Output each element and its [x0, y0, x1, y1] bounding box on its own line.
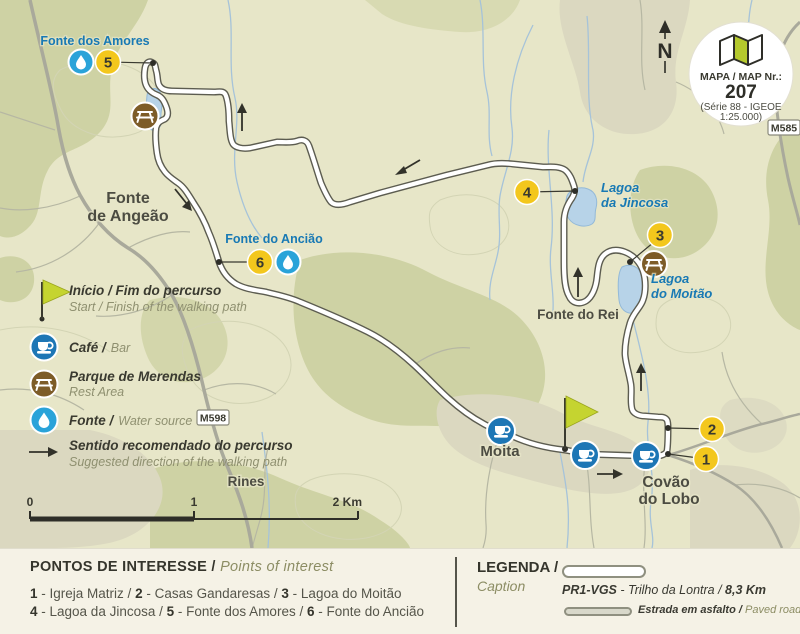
- key-fonte-pt: Fonte /: [69, 413, 114, 428]
- north-label: N: [657, 40, 672, 63]
- svg-text:Fonte /Water source: Fonte /Water source: [69, 413, 192, 428]
- paved-road-symbol: [564, 607, 632, 616]
- road-label-m585: M585: [768, 120, 800, 135]
- label-moita: Moita: [480, 443, 520, 460]
- poi-name-3: Lagoa do Moitão: [301, 586, 402, 601]
- water-marker-amores: [69, 50, 94, 75]
- legenda-title: LEGENDA /: [477, 559, 558, 576]
- label-fonte-de-angeao: Fonte: [106, 190, 150, 207]
- poi-sep: -: [38, 586, 50, 601]
- label-fonte-dos-amores: Fonte dos Amores: [40, 34, 149, 48]
- poi-marker-1-label: 1: [702, 451, 710, 468]
- key-sentido-en: Suggested direction of the walking path: [69, 455, 287, 469]
- poi-list-line-2: 4 - Lagoa da Jincosa / 5 - Fonte dos Amo…: [30, 604, 424, 619]
- panel-divider: [455, 557, 457, 627]
- poi-sep: -: [38, 604, 50, 619]
- poi-num-1: 1: [30, 586, 38, 601]
- label-lagoa-da-jincosa-2: da Jincosa: [601, 195, 668, 210]
- svg-text:Café /Bar: Café /Bar: [69, 340, 131, 355]
- trail-symbol: [562, 565, 646, 578]
- key-cafe-pt: Café /: [69, 340, 107, 355]
- label-rines: Rines: [228, 474, 265, 489]
- poi-sep: /: [124, 586, 135, 601]
- label-covao-do-lobo: Covão: [642, 474, 689, 491]
- info-panel: PONTOS DE INTERESSE / Points of interest…: [0, 548, 800, 634]
- map-badge: MAPA / MAP Nr.: 207 (Série 88 - IGEOE 1:…: [689, 22, 793, 126]
- water-marker-anciao: [276, 250, 301, 275]
- trail-name: - Trilho da Lontra /: [617, 583, 725, 597]
- cafe-marker-center: [571, 441, 599, 469]
- poi-sep: -: [314, 604, 326, 619]
- poi-sep: -: [143, 586, 155, 601]
- trail-name-label: PR1-VGS - Trilho da Lontra / 8,3 Km: [562, 583, 766, 597]
- poi-name-4: Lagoa da Jincosa: [50, 604, 156, 619]
- poi-title-pt: PONTOS DE INTERESSE /: [30, 559, 216, 575]
- cafe-marker-covao: [632, 442, 660, 470]
- poi-marker-5-label: 5: [104, 54, 112, 71]
- legenda-caption: Caption: [477, 578, 525, 594]
- scale-1: 1: [191, 495, 198, 509]
- label-covao-do-lobo-2: do Lobo: [638, 491, 699, 508]
- poi-name-5: Fonte dos Amores: [186, 604, 296, 619]
- key-cafe-en: Bar: [111, 341, 131, 355]
- poi-marker-2: 2: [700, 417, 725, 442]
- poi-sep: /: [155, 604, 166, 619]
- poi-list-line-1: 1 - Igreja Matriz / 2 - Casas Gandaresas…: [30, 586, 402, 601]
- poi-marker-2-label: 2: [708, 421, 716, 438]
- poi-sep: /: [296, 604, 307, 619]
- poi-marker-3-label: 3: [656, 227, 664, 244]
- poi-marker-6-label: 6: [256, 254, 264, 271]
- poi-sep: -: [174, 604, 186, 619]
- poi-marker-3: 3: [648, 223, 673, 248]
- paved-road-label: Estrada em asfalto / Paved road: [638, 604, 800, 616]
- folded-map-icon: [720, 35, 762, 65]
- key-sentido-pt: Sentido recomendado do percurso: [69, 438, 293, 453]
- poi-num-2: 2: [135, 586, 143, 601]
- paved-road-pt: Estrada em asfalto /: [638, 604, 742, 616]
- poi-name-6: Fonte do Ancião: [326, 604, 424, 619]
- poi-num-4: 4: [30, 604, 38, 619]
- poi-sep: /: [270, 586, 281, 601]
- picnic-marker-amores: [132, 103, 159, 130]
- map-canvas: 5 6 4 3 2 1 Fonte de Angeão Moita Covão: [0, 0, 800, 548]
- paved-road-en: Paved road: [745, 604, 800, 616]
- scale-0: 0: [27, 495, 34, 509]
- badge-series-2: 1:25.000): [720, 112, 762, 123]
- road-label-m585-text: M585: [771, 122, 797, 134]
- cafe-marker-moita: [487, 417, 515, 445]
- label-lagoa-do-moitao-2: do Moitão: [651, 286, 712, 301]
- poi-marker-4: 4: [515, 180, 540, 205]
- poi-name-1: Igreja Matriz: [50, 586, 124, 601]
- trail-distance: 8,3 Km: [725, 583, 766, 597]
- label-fonte-do-rei: Fonte do Rei: [537, 307, 619, 322]
- road-label-m598-text: M598: [200, 412, 226, 424]
- label-lagoa-da-jincosa: Lagoa: [601, 180, 639, 195]
- key-inicio-en: Start / Finish of the walking path: [69, 300, 247, 314]
- key-parque-en: Rest Area: [69, 385, 124, 399]
- poi-marker-4-label: 4: [523, 184, 532, 201]
- poi-name-2: Casas Gandaresas: [155, 586, 271, 601]
- poi-num-5: 5: [167, 604, 175, 619]
- label-fonte-do-anciao: Fonte do Ancião: [225, 232, 323, 246]
- poi-marker-6: 6: [248, 250, 273, 275]
- key-parque-pt: Parque de Merendas: [69, 369, 202, 384]
- key-inicio-pt: Início / Fim do percurso: [69, 283, 221, 298]
- poi-marker-5: 5: [96, 50, 121, 75]
- road-label-m598: M598: [197, 410, 229, 425]
- key-fonte-en: Water source: [118, 414, 192, 428]
- poi-num-3: 3: [281, 586, 289, 601]
- poi-title-en: Points of interest: [220, 559, 333, 575]
- scale-2km: 2 Km: [333, 495, 362, 509]
- label-fonte-de-angeao-2: de Angeão: [87, 208, 168, 225]
- poi-marker-1: 1: [694, 447, 719, 472]
- label-lagoa-do-moitao: Lagoa: [651, 271, 689, 286]
- trail-map-page: 5 6 4 3 2 1 Fonte de Angeão Moita Covão: [0, 0, 800, 634]
- trail-code: PR1-VGS: [562, 583, 617, 597]
- poi-title: PONTOS DE INTERESSE / Points of interest: [30, 559, 333, 575]
- badge-number: 207: [725, 82, 757, 103]
- poi-sep: -: [289, 586, 301, 601]
